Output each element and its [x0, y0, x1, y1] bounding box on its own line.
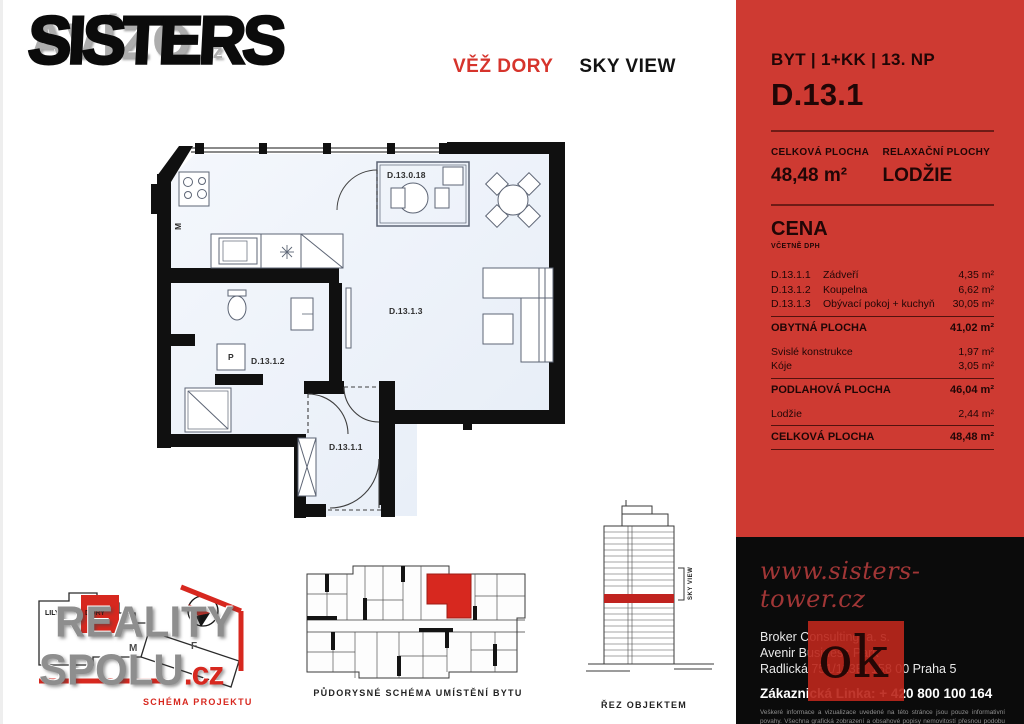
room-table: D.13.1.1 Zádveří 4,35 m² D.13.1.2 Koupel…	[771, 268, 994, 450]
price-block: CENA VČETNĚ DPH	[771, 218, 994, 250]
section-highlight-band	[604, 594, 674, 603]
room-row: D.13.1.1 Zádveří 4,35 m²	[771, 268, 994, 283]
section-tower	[604, 500, 674, 664]
table-line	[771, 316, 994, 317]
relax-area-block: RELAXAČNÍ PLOCHY LODŽIE	[883, 147, 995, 187]
project-schematic-caption: SCHÉMA PROJEKTU	[143, 697, 253, 707]
section-caption: ŘEZ OBJEKTEM	[601, 700, 687, 710]
floor-area-row: PODLAHOVÁ PLOCHA 46,04 m²	[771, 383, 994, 398]
project-schematic: LILY DORY M F	[31, 583, 271, 713]
relax-area-label: RELAXAČNÍ PLOCHY	[883, 147, 995, 158]
extra-row: Kóje 3,05 m²	[771, 359, 994, 374]
unit-id: D.13.1	[771, 77, 994, 113]
apartment-floorplan: M P	[151, 138, 575, 522]
floorplate-schematic	[299, 560, 533, 685]
unit-info-sidebar: BYT | 1+KK | 13. NP D.13.1 CELKOVÁ PLOCH…	[736, 0, 1024, 537]
unit-type: BYT | 1+KK | 13. NP	[771, 50, 994, 70]
living-area-row: OBYTNÁ PLOCHA 41,02 m²	[771, 321, 994, 336]
extra-row: Svislé konstrukce 1,97 m²	[771, 345, 994, 360]
fridge-label: M	[173, 223, 183, 230]
washer-label: P	[228, 352, 234, 362]
label-lily: LILY	[45, 610, 60, 617]
project-subtitle: SKY VIEW	[579, 56, 676, 77]
ok-watermark-badge: ok	[808, 621, 904, 701]
sisters-logo: SISTERS	[26, 1, 285, 79]
label-dory: DORY	[85, 610, 105, 617]
sidebar-divider-1	[771, 130, 994, 132]
legal-disclaimer: Veškeré informace a vizualizace uvedené …	[760, 709, 1005, 724]
loggia-room-label: D.13.0.18	[387, 170, 426, 180]
loggia-row: Lodžie 2,44 m²	[771, 407, 994, 422]
total-area-block: CELKOVÁ PLOCHA 48,48 m²	[771, 147, 883, 187]
table-gap	[771, 398, 994, 407]
table-line	[771, 449, 994, 450]
project-title: VĚŽ DORYSKY VIEW	[453, 56, 676, 78]
relax-area-value: LODŽIE	[883, 165, 995, 187]
price-label: CENA	[771, 218, 994, 241]
bath-room-label: D.13.1.2	[251, 356, 285, 366]
floorplate-caption: PŮDORYSNÉ SCHÉMA UMÍSTĚNÍ BYTU	[299, 688, 537, 698]
label-m: M	[129, 643, 137, 654]
living-room-label: D.13.1.3	[389, 306, 423, 316]
window-band	[191, 148, 449, 152]
contact-footer: www.sisters-tower.cz Broker Consulting, …	[736, 537, 1024, 724]
hall-room-label: D.13.1.1	[329, 442, 363, 452]
project-name: VĚŽ DORY	[453, 56, 553, 77]
table-line	[771, 378, 994, 379]
total-row: CELKOVÁ PLOCHA 48,48 m²	[771, 430, 994, 445]
label-f: F	[191, 641, 197, 652]
brochure-page: AVÍZO.cz SISTERS VĚŽ DORYSKY VIEW	[0, 0, 1024, 724]
table-gap	[771, 336, 994, 345]
price-note: VČETNĚ DPH	[771, 243, 994, 250]
total-area-label: CELKOVÁ PLOCHA	[771, 147, 883, 158]
table-line	[771, 425, 994, 426]
total-area-value: 48,48 m²	[771, 165, 883, 187]
floorplate-outline	[307, 566, 525, 678]
room-row: D.13.1.2 Koupelna 6,62 m²	[771, 283, 994, 298]
section-band-label: SKY VIEW	[688, 567, 694, 600]
section-ground	[586, 664, 714, 671]
section-schematic: SKY VIEW	[586, 498, 721, 694]
section-bracket	[678, 568, 684, 600]
room-row: D.13.1.3 Obývací pokoj + kuchyň 30,05 m²	[771, 297, 994, 312]
areas-row: CELKOVÁ PLOCHA 48,48 m² RELAXAČNÍ PLOCHY…	[771, 147, 994, 187]
website-url: www.sisters-tower.cz	[760, 557, 1005, 613]
sidebar-divider-2	[771, 204, 994, 206]
